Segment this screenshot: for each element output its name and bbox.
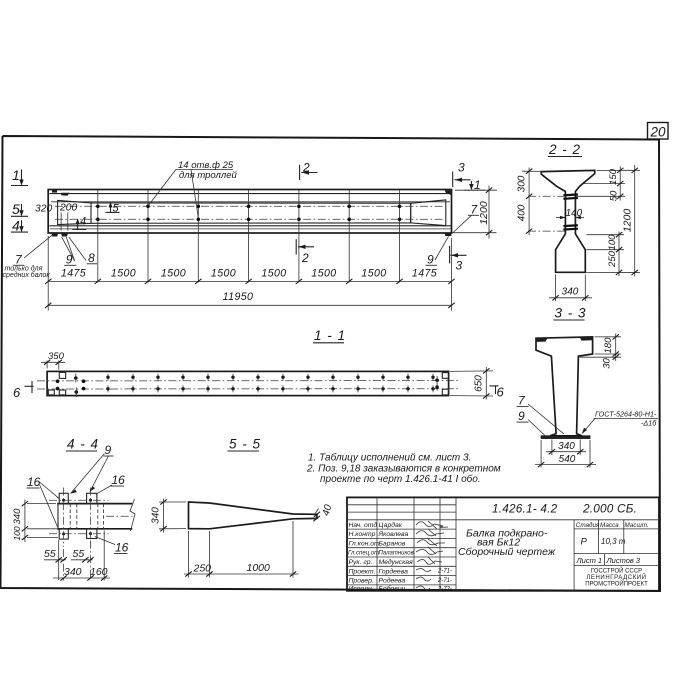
svg-text:9: 9 [427, 253, 434, 267]
svg-text:3: 3 [456, 259, 463, 273]
svg-text:160: 160 [90, 566, 108, 578]
svg-text:1500: 1500 [311, 268, 336, 280]
svg-text:2.000 СБ.: 2.000 СБ. [582, 502, 637, 516]
svg-text:3: 3 [458, 161, 465, 175]
svg-text:9: 9 [105, 443, 112, 457]
svg-text:5: 5 [12, 201, 20, 217]
svg-text:ГОСТ-5264-80-Н1-: ГОСТ-5264-80-Н1- [595, 410, 657, 419]
svg-text:1500: 1500 [261, 268, 286, 280]
svg-text:9: 9 [518, 409, 525, 423]
svg-text:ПРОМСТРОЙПРОЕКТ: ПРОМСТРОЙПРОЕКТ [585, 580, 648, 588]
svg-text:20: 20 [650, 125, 667, 140]
svg-text:Баранов: Баранов [379, 540, 406, 547]
svg-text:180: 180 [603, 337, 614, 354]
svg-text:55: 55 [73, 548, 85, 560]
svg-text:проекте по черт 1.426.1-41: проекте по черт 1.426.1-41 I обо. [320, 473, 481, 485]
svg-text:Р: Р [581, 537, 588, 548]
svg-text:50: 50 [609, 190, 620, 201]
svg-text:Листов 3: Листов 3 [606, 556, 641, 565]
svg-text:2 - 2: 2 - 2 [548, 142, 581, 157]
svg-text:3 - 3: 3 - 3 [555, 306, 587, 321]
svg-text:340: 340 [12, 508, 23, 525]
svg-text:200: 200 [59, 203, 77, 214]
svg-text:Бобович: Бобович [379, 584, 406, 592]
svg-text:Н.контр: Н.контр [349, 531, 376, 538]
svg-text:300: 300 [517, 175, 528, 192]
svg-text:1500: 1500 [111, 268, 136, 280]
svg-text:340: 340 [558, 441, 575, 452]
svg-text:Проект.: Проект. [349, 568, 376, 575]
svg-text:1200: 1200 [478, 201, 490, 225]
svg-text:Масса: Масса [600, 522, 619, 529]
svg-text:5: 5 [113, 203, 120, 215]
svg-text:6: 6 [497, 385, 505, 400]
svg-text:Гл.спец.от: Гл.спец.от [348, 551, 379, 557]
svg-text:100: 100 [607, 234, 618, 251]
svg-text:1500: 1500 [161, 268, 186, 280]
svg-text:6: 6 [13, 385, 21, 400]
svg-text:350: 350 [48, 351, 65, 362]
svg-text:540: 540 [559, 454, 576, 465]
svg-text:1: 1 [12, 167, 20, 183]
svg-text:2-71-: 2-71- [437, 578, 452, 584]
svg-text:для троллей: для троллей [179, 170, 237, 181]
svg-text:1475: 1475 [412, 268, 437, 280]
svg-text:2: 2 [302, 161, 310, 175]
svg-text:Медунская: Медунская [379, 558, 414, 566]
svg-text:16: 16 [112, 473, 126, 487]
svg-text:340: 340 [151, 507, 162, 524]
svg-text:-Δ1б: -Δ1б [641, 419, 657, 428]
svg-text:250: 250 [193, 563, 212, 575]
svg-text:1000: 1000 [247, 562, 271, 574]
svg-text:1 - 1: 1 - 1 [314, 328, 346, 343]
svg-text:340: 340 [64, 566, 82, 578]
svg-text:2-72-: 2-72- [437, 587, 452, 593]
svg-text:Исполн.: Исполн. [349, 585, 374, 592]
svg-text:55: 55 [44, 548, 56, 560]
svg-text:1. Таблицу исполнений см. лис: 1. Таблицу исполнений см. лист 3. [308, 452, 471, 464]
svg-text:16: 16 [115, 541, 129, 555]
svg-text:4: 4 [12, 218, 20, 234]
svg-text:8: 8 [88, 251, 95, 265]
svg-text:4: 4 [80, 216, 86, 228]
svg-text:320: 320 [35, 204, 52, 215]
svg-text:16: 16 [27, 475, 41, 489]
svg-text:Масшт.: Масшт. [625, 522, 649, 529]
svg-text:Сборочный чертеж: Сборочный чертеж [458, 546, 556, 558]
svg-text:Гордеева: Гордеева [379, 567, 409, 575]
svg-text:Лист 1: Лист 1 [576, 556, 603, 565]
svg-text:9: 9 [66, 253, 73, 267]
svg-text:2: 2 [301, 251, 309, 265]
svg-text:150: 150 [608, 168, 619, 185]
svg-text:Стадия: Стадия [576, 521, 600, 529]
svg-text:1200: 1200 [622, 209, 634, 233]
svg-text:1500: 1500 [361, 268, 386, 280]
svg-text:Провер.: Провер. [349, 578, 374, 585]
svg-text:340: 340 [562, 287, 579, 298]
svg-text:30: 30 [602, 358, 613, 369]
svg-text:10,3 т: 10,3 т [601, 537, 626, 546]
svg-text:2. Поз. 9,18 заказываются в ко: 2. Поз. 9,18 заказываются в конкретном [306, 463, 501, 474]
svg-text:1475: 1475 [61, 268, 86, 280]
svg-text:средних балок: средних балок [3, 271, 51, 279]
svg-text:650: 650 [474, 375, 485, 392]
svg-text:Рук. гр.: Рук. гр. [349, 559, 373, 566]
svg-text:ЛЕНИНГРАДСКИЙ: ЛЕНИНГРАДСКИЙ [586, 573, 646, 581]
svg-text:1500: 1500 [211, 268, 236, 280]
svg-text:1.426.1- 4.2: 1.426.1- 4.2 [492, 502, 558, 516]
svg-text:Нач. отд: Нач. отд [349, 521, 378, 529]
svg-text:250: 250 [607, 250, 618, 268]
svg-text:Цардак: Цардак [379, 521, 403, 529]
svg-text:Гл.кон.от: Гл.кон.от [349, 540, 381, 547]
svg-text:100: 100 [12, 526, 22, 540]
svg-text:ГОССТРОЙ СССР: ГОССТРОЙ СССР [591, 567, 642, 575]
svg-text:5 - 5: 5 - 5 [229, 437, 261, 452]
svg-text:Родеева: Родеева [379, 577, 406, 585]
svg-text:4 - 4: 4 - 4 [67, 437, 99, 452]
svg-text:Палатников: Палатников [379, 551, 414, 557]
svg-text:400: 400 [517, 204, 528, 221]
svg-text:2-71-: 2-71- [437, 569, 452, 575]
svg-text:11950: 11950 [223, 291, 254, 303]
svg-text:Яковлева: Яковлева [378, 531, 409, 538]
